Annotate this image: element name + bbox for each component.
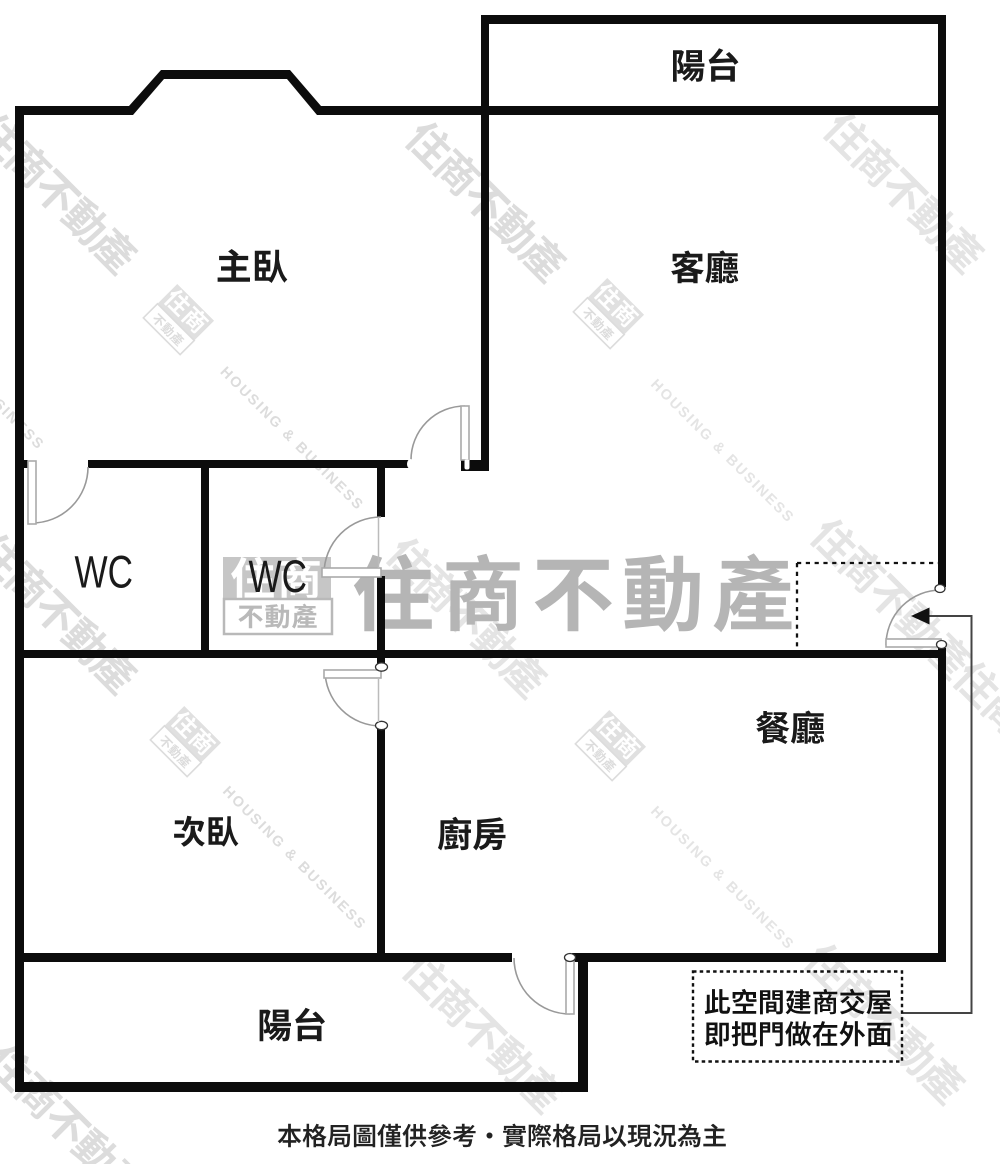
svg-text:WC: WC (75, 547, 134, 598)
svg-text:WC: WC (249, 551, 308, 602)
